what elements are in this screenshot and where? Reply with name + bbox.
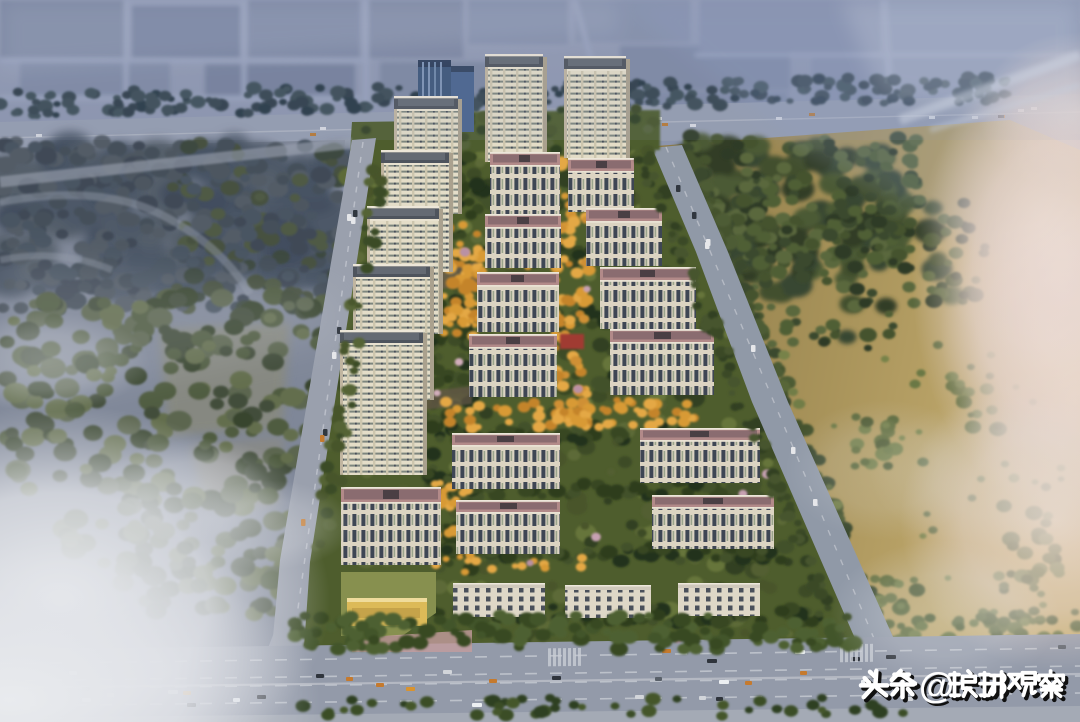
svg-text:@: @ bbox=[919, 665, 954, 706]
